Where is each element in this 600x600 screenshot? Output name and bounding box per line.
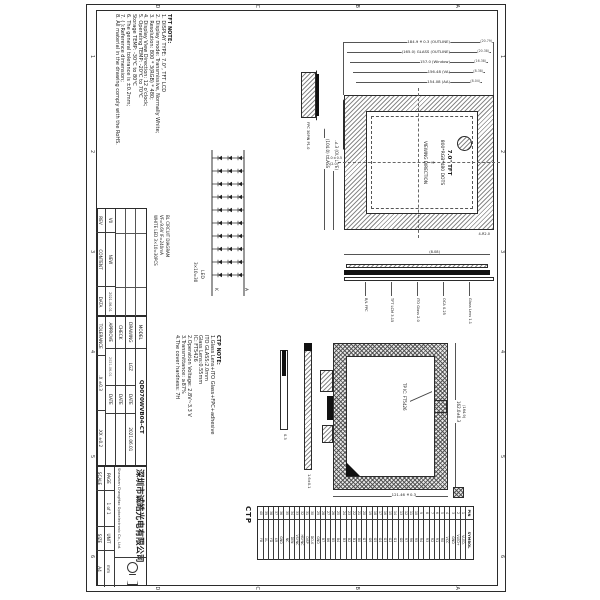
pin-symbol: YD (269, 520, 274, 560)
ctp-note-lines: 1.Glass Lens+ITO Glass+FPC+adhesive ITO … (174, 335, 214, 435)
rev-content: NEW (106, 233, 116, 287)
page-value: 1 of 1 (104, 491, 114, 527)
rev-value: V0 (106, 209, 116, 233)
approve-label: APPROVE (106, 317, 116, 349)
layer-label: OCA 0.25 (442, 298, 446, 315)
pin-symbol: G0 (399, 520, 404, 560)
section-backlight-layer (346, 264, 488, 268)
pin-symbol: GND (450, 520, 455, 560)
scale-label: SCALE (96, 467, 105, 491)
front-view-size-label: 7.0" TFT (446, 116, 452, 209)
zone-col-label: 5 (89, 455, 95, 458)
dim-chain-end-label: (20.79) (480, 39, 492, 43)
pin-number: 23 (347, 507, 352, 520)
edge-section-2-pins (282, 350, 286, 376)
pin-symbol: B4 (336, 520, 341, 560)
fpc-dim-2: (2.0) (330, 162, 338, 166)
pin-symbol: R3 (425, 520, 430, 560)
bl-caption-title: BL CIRCUIT DIAGRAM (164, 215, 170, 266)
corner-mark (346, 462, 360, 476)
overall-dim-line (344, 254, 490, 255)
pin-symbol: VLED- (461, 520, 466, 560)
approve-date: 2021-06-01 (106, 349, 116, 387)
zone-col-label: 6 (89, 555, 95, 558)
rev-grid-line (116, 233, 146, 234)
pin-number: 34 (290, 507, 295, 520)
date-label-3: DATE (106, 386, 116, 414)
pin-symbol: GND (316, 520, 321, 560)
pin-number: 11 (409, 507, 414, 520)
title-block: MODEL QD070WVB04-CT DRAWING LGZ DATE 202… (97, 316, 147, 466)
rev-date: 2021-06-01 (106, 287, 116, 317)
zone-col-label: 2 (500, 150, 506, 153)
pin-symbol: B0 (357, 520, 362, 560)
tft-note-line: 6. The general tolerance is ±0.2mm; (125, 14, 131, 145)
zone-row-label: C (254, 5, 260, 9)
pin-number: 18 (373, 507, 378, 520)
model-row: MODEL QD070WVB04-CT (136, 317, 146, 465)
pin-number: 27 (326, 507, 331, 520)
adhesive-dot (457, 136, 472, 151)
revision-entry-row: V0 NEW 2021-06-01 (106, 209, 116, 317)
pin-symbol: R5 (414, 520, 419, 560)
layer-leader-line (469, 282, 470, 296)
rev-header: REV (96, 209, 106, 233)
layer-leader-line (443, 282, 444, 296)
pin-symbol: B3 (342, 520, 347, 560)
symbol-col-header: SYMBOL (466, 520, 473, 560)
led-label: LED (199, 270, 204, 279)
pin-symbol: R0 (440, 520, 445, 560)
pin-number: 21 (357, 507, 362, 520)
edge-section-1 (304, 343, 312, 470)
section-glass-layer (344, 277, 494, 281)
zone-col-label: 2 (89, 150, 95, 153)
tolerance-x: .X ±0.3 (97, 356, 106, 410)
fpc-label: FPC 30PIN P1.0 (306, 122, 310, 149)
pin-number: 31 (305, 507, 310, 520)
dim-width-2: (104.0) GLASS (324, 138, 329, 169)
pin-symbol: B5 (331, 520, 336, 560)
pin-number: 3 (450, 507, 455, 520)
date-label-1: DATE (126, 386, 136, 414)
pin-number: 10 (414, 507, 419, 520)
dim-chain-end-label: (8.04) (470, 79, 480, 83)
pin-number: 8 (425, 507, 430, 520)
pin-number: 35 (284, 507, 289, 520)
model-value: QD070WVB04-CT (136, 349, 146, 465)
rev-grid-line (126, 209, 127, 317)
layer-leader-line (417, 282, 418, 296)
extension-line-bottom (343, 42, 344, 95)
check-row: CHECK DATE (116, 317, 126, 465)
tft-note-line: Storage TEMP: -30℃ to 80℃ (130, 14, 136, 145)
zone-row-label: B (354, 587, 360, 590)
dim-chain-line (356, 82, 482, 83)
fpc-connector (301, 72, 316, 118)
pin-number: 2 (456, 507, 461, 520)
drawing-label: DRAWING (126, 317, 136, 349)
size-label: SIZE (96, 527, 105, 551)
dim-chain-label: 184.9±0.3 (OUTLINE) (407, 39, 450, 44)
pin-symbol: G6 (367, 520, 372, 560)
page-label: PAGE (104, 467, 114, 491)
viewing-direction-arrow-icon: ⇧ (428, 116, 434, 209)
check-label: CHECK (116, 317, 126, 349)
zone-row-label: A (454, 5, 460, 8)
dim-chain-label: 157.0 (Window) (420, 59, 450, 64)
pin-symbol: G5 (373, 520, 378, 560)
edge-section-1-dim: 1.6±0.1 (307, 473, 311, 489)
company-name-en: Shenzhen ChengHao Optoelectronic Co., Lt… (117, 468, 121, 558)
layer-leader-line (391, 282, 392, 296)
company-name-cn: 深圳市诚皓光电有限公司 (133, 469, 143, 557)
back-dim-line-right (333, 496, 448, 497)
date-label-2: DATE (116, 386, 126, 414)
zone-col-label: 3 (89, 250, 95, 253)
drawing-date: 2021.06.01 (126, 414, 136, 465)
tft-note-lines: 1. DISPLAY TYPE: 7.0", TFT LCD2. Display… (113, 14, 165, 145)
pin-symbol: G4 (378, 520, 383, 560)
zone-row-label: D (154, 5, 160, 9)
bl-caption-led: WHITE LED 3×10=30PCS (152, 215, 158, 266)
tft-note: TFT NOTE: 1. DISPLAY TYPE: 7.0", TFT LCD… (113, 14, 172, 145)
layer-label: B/L FPC (364, 298, 368, 312)
pin-symbol: R7 (404, 520, 409, 560)
tft-note-line: 8. All material in the drawing comply wi… (113, 14, 119, 145)
pin-symbol: G1 (393, 520, 398, 560)
rev-grid-line (116, 287, 146, 288)
revision-table: V0 NEW 2021-06-01 REV CONTENT DATA (97, 208, 147, 316)
ctp-note-line: 2.Operation Voltage: 2.8V~3.3 V (185, 335, 191, 435)
anode-label: A (243, 288, 248, 291)
back-dim-top2: (164.9) (462, 404, 466, 419)
edge-section-1-end (304, 343, 312, 351)
drawing-sheet: 7.0" TFT 800*RGB*480 DOTS ⇧ VIEWING DIRE… (0, 0, 600, 600)
pin-symbol: HSYNC (300, 520, 305, 560)
fpc-pins (316, 74, 319, 116)
fpc-dim-1: 4.0±0.5 (327, 156, 342, 160)
back-pin-strip (327, 396, 333, 420)
pin-symbol: G2 (388, 520, 393, 560)
tft-note-title: TFT NOTE: (165, 14, 172, 145)
dim-chain-end-label: (20.38) (477, 49, 489, 53)
pin-number: 25 (336, 507, 341, 520)
ctp-note: CTP NOTE: 1.Glass Lens+ITO Glass+FPC+adh… (174, 335, 222, 435)
dim-chain-label: 156.48 (VA) (428, 69, 450, 74)
pin-symbol: R6 (409, 520, 414, 560)
pin-number: 16 (383, 507, 388, 520)
dim-chain-end-label: (8.38) (473, 69, 483, 73)
back-fpc-stub-2 (322, 425, 333, 443)
pin-number: 6 (435, 507, 440, 520)
unit-value: mm (104, 551, 114, 587)
pin-number: 33 (295, 507, 300, 520)
pin-symbol: B7 (321, 520, 326, 560)
pin-symbol: R4 (419, 520, 424, 560)
ctp-note-line: 1.Glass Lens+ITO Glass+FPC+adhesive (208, 335, 214, 435)
page-row: PAGE 1 of 1 UNIT mm (104, 467, 115, 587)
drawing-value: LGZ (126, 349, 136, 387)
content-header: CONTENT (96, 233, 106, 287)
pin-number: 40 (259, 507, 264, 520)
zone-col-label: 3 (500, 250, 506, 253)
dim-chain-end-label: (16.38) (474, 59, 486, 63)
company-block: 深圳市诚皓光电有限公司 Shenzhen ChengHao Optoelectr… (97, 466, 147, 586)
scale-row: SCALE SIZE A4 (96, 467, 105, 587)
back-view-inner (346, 356, 435, 477)
pin-symbol: R1 (435, 520, 440, 560)
edge-section-2-dim: 0.3 (283, 433, 287, 441)
zone-row-label: C (254, 587, 260, 591)
led-count: 3×10=30 (192, 262, 197, 282)
data-header: DATA (96, 287, 106, 317)
check-value (116, 349, 126, 387)
pin-symbol: YU (259, 520, 264, 560)
zone-col-label: 4 (500, 350, 506, 353)
back-dim-top: 162.0±0.3 (455, 400, 460, 423)
third-angle-projection-icon (127, 562, 138, 573)
pin-number: 37 (274, 507, 279, 520)
projection-cell (115, 557, 146, 588)
tolerance-label: TOLERANCE (97, 317, 106, 356)
pin-table: PINSYMBOL1VLED-2VLED+3GND4VCC5R06R17R28R… (258, 506, 475, 560)
revision-header-row: REV CONTENT DATA (96, 209, 106, 317)
pin-symbol: XR (274, 520, 279, 560)
zone-col-label: 5 (500, 455, 506, 458)
pin-number: 39 (264, 507, 269, 520)
pin-symbol: DISP (305, 520, 310, 560)
pin-number: 9 (419, 507, 424, 520)
ctp-note-line: 3.Transmittance: ≥87% (180, 335, 186, 435)
pin-number: 22 (352, 507, 357, 520)
pin-number: 4 (445, 507, 450, 520)
pin-symbol: B6 (326, 520, 331, 560)
pin-symbol: VCC (445, 520, 450, 560)
pin-number: 29 (316, 507, 321, 520)
model-label: MODEL (136, 317, 146, 349)
pin-symbol: R2 (430, 520, 435, 560)
size-value: A4 (96, 551, 105, 587)
bl-captions: BL CIRCUIT DIAGRAM VF=9.6V IF=240mA WHIT… (152, 215, 170, 266)
unit-label: UNIT (104, 527, 114, 551)
zone-row-label: A (454, 587, 460, 590)
pin-number: 20 (362, 507, 367, 520)
pin-table-caption: CTP (244, 506, 252, 524)
tolerance-xx: .XX ±0.2 (97, 411, 106, 465)
pin-symbol: G7 (362, 520, 367, 560)
ctp-note-title: CTP NOTE: (214, 335, 222, 435)
pin-number: 26 (331, 507, 336, 520)
pin-number: 13 (399, 507, 404, 520)
corner-radius-label: 4-R2.0 (479, 232, 491, 236)
pin-symbol: GND (279, 520, 284, 560)
zone-col-label: 1 (500, 55, 506, 58)
third-angle-cone-icon (127, 574, 138, 585)
datasheet-screenshot: 7.0" TFT 800*RGB*480 DOTS ⇧ VIEWING DIRE… (0, 0, 600, 600)
pin-number: 28 (321, 507, 326, 520)
pin-number: 7 (430, 507, 435, 520)
pin-number: 1 (461, 507, 466, 520)
zone-col-label: 4 (89, 350, 95, 353)
zone-row-label: D (154, 587, 160, 591)
zone-col-label: 1 (89, 55, 95, 58)
approve-row: APPROVE 2021-06-01 DATE (106, 317, 116, 465)
layer-leader-line (365, 282, 366, 296)
pin-number: 19 (367, 507, 372, 520)
approve-date-2 (106, 414, 116, 465)
dim-chain-label: 154.08 (AA) (427, 79, 450, 84)
tft-note-line: 2. Display mode: Transmissive, Normally … (153, 14, 159, 145)
pin-symbol: DCLK (310, 520, 315, 560)
cathode-label: K (213, 288, 218, 291)
section-lcm-layer (344, 270, 490, 275)
ctp-ic-detail (453, 487, 464, 498)
layer-label: Glass Lens 1.1 (468, 298, 472, 324)
pin-number: 5 (440, 507, 445, 520)
front-view-resolution-label: 800*RGB*480 DOTS (439, 116, 444, 209)
pin-number: 14 (393, 507, 398, 520)
pin-col-header: PIN (466, 507, 473, 520)
pin-symbol: B2 (347, 520, 352, 560)
dim-chain-line (353, 72, 485, 73)
rev-grid-line (136, 209, 137, 317)
dim-chain-label: (165.0) GLASS (OUTLINE) (402, 49, 450, 54)
drawing-row: DRAWING LGZ DATE 2021.06.01 (126, 317, 136, 465)
pin-symbol: VLED+ (456, 520, 461, 560)
pin-symbol: G3 (383, 520, 388, 560)
viewing-direction-label: VIEWING DIRECTION (422, 116, 427, 209)
zone-row-label: B (354, 5, 360, 8)
ic-label: TP IC: FT5426 (401, 383, 406, 411)
pin-number: 32 (300, 507, 305, 520)
pin-number: 24 (342, 507, 347, 520)
tolerance-row: TOLERANCE .X ±0.3 .XX ±0.2 (97, 317, 106, 465)
pin-symbol: B1 (352, 520, 357, 560)
pin-symbol: VSYNC (295, 520, 300, 560)
pin-number: 36 (279, 507, 284, 520)
extension-line-top (493, 42, 494, 95)
pin-number: 17 (378, 507, 383, 520)
pin-symbol: DEN (290, 520, 295, 560)
layer-label: ITO Glass 2.0 (416, 298, 420, 322)
ctp-note-line: 4.The cover hardness: 7H (174, 335, 180, 435)
zone-col-label: 6 (500, 555, 506, 558)
pin-symbol: NC (284, 520, 289, 560)
pin-symbol: XL (264, 520, 269, 560)
pin-number: 15 (388, 507, 393, 520)
centerline-v (338, 162, 500, 163)
scale-value (96, 491, 105, 527)
pin-number: 38 (269, 507, 274, 520)
check-date (116, 414, 126, 465)
bl-caption-spec: VF=9.6V IF=240mA (158, 215, 164, 266)
back-fpc-stub-1 (320, 370, 333, 392)
back-dim-right: 121.46±0.3 (392, 492, 416, 497)
centerline-h (418, 88, 419, 238)
touch-ic (434, 400, 447, 413)
overall-dim: (8.08) (429, 250, 440, 254)
pin-number: 12 (404, 507, 409, 520)
layer-label: TFT LCM 3.15 (390, 298, 394, 322)
pin-number: 30 (310, 507, 315, 520)
